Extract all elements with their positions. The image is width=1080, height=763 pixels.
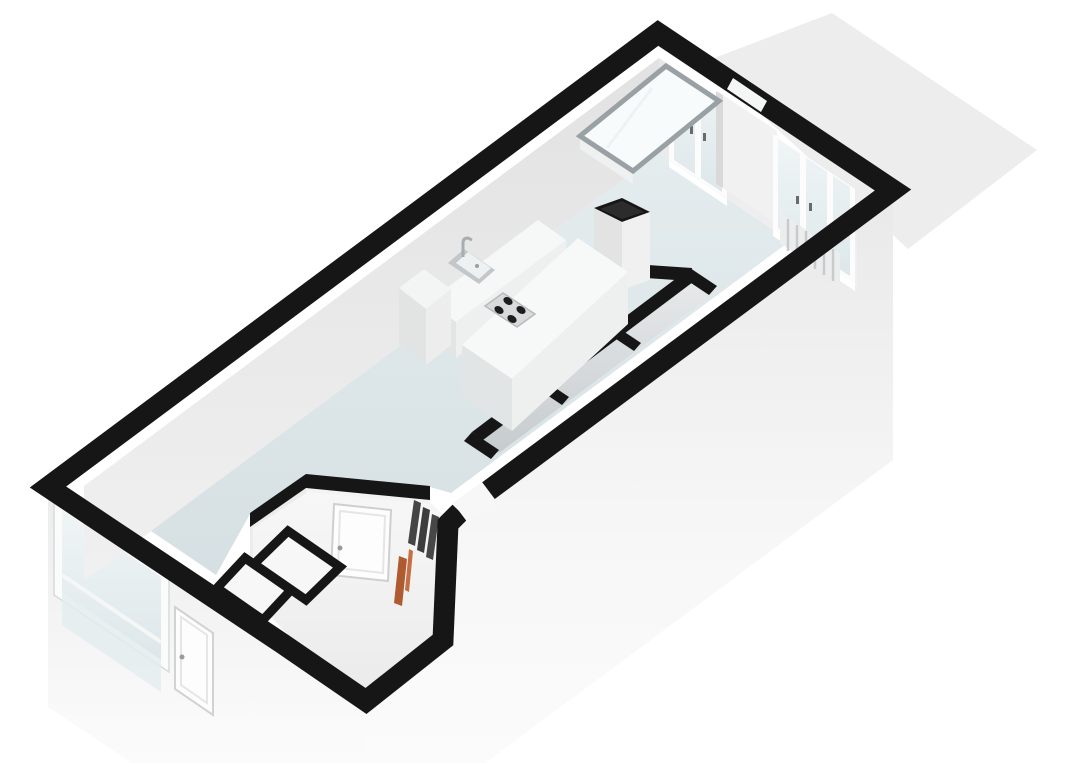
door-handle — [180, 655, 185, 660]
floorplan-canvas — [0, 0, 1080, 763]
door-handle — [338, 546, 343, 551]
door-handle — [796, 196, 799, 204]
door-handle — [703, 133, 706, 141]
sink-drain — [475, 264, 479, 268]
door-handle — [809, 203, 812, 211]
floorplan-viewport[interactable] — [0, 0, 1080, 763]
